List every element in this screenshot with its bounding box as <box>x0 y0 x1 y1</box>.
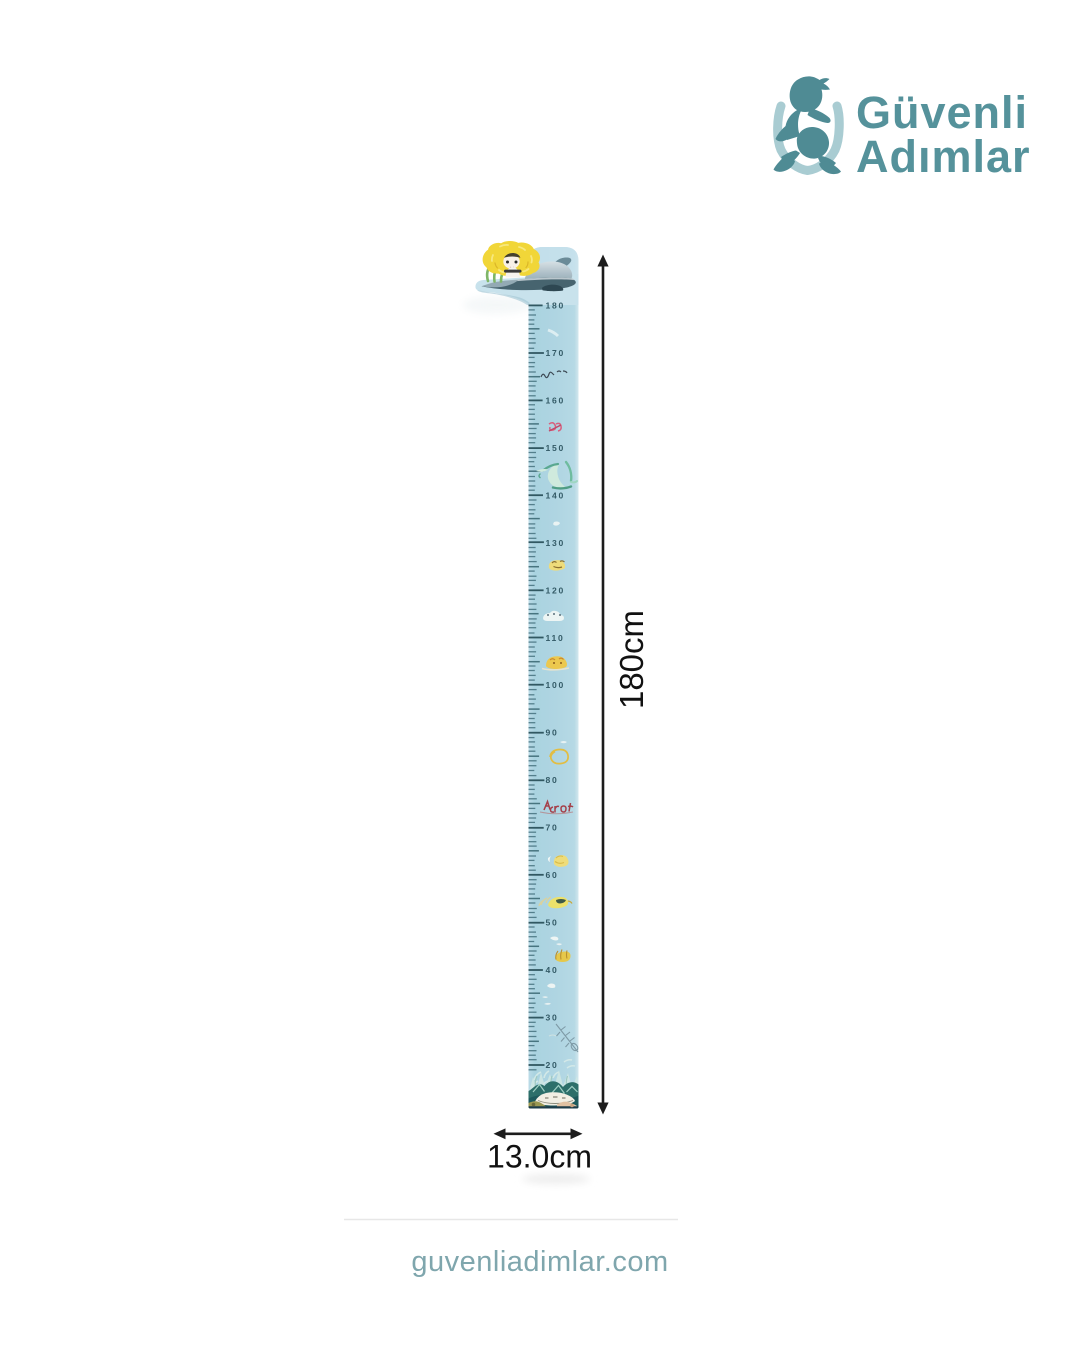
svg-text:130: 130 <box>546 538 565 548</box>
svg-text:20: 20 <box>546 1060 559 1070</box>
svg-text:100: 100 <box>546 680 565 690</box>
svg-text:13.0cm: 13.0cm <box>487 1139 592 1175</box>
svg-text:30: 30 <box>546 1013 559 1023</box>
svg-text:160: 160 <box>546 395 565 405</box>
svg-text:180: 180 <box>546 301 565 311</box>
svg-text:90: 90 <box>546 728 559 738</box>
svg-text:120: 120 <box>546 585 565 595</box>
svg-text:80: 80 <box>546 775 559 785</box>
svg-text:guvenliadimlar.com: guvenliadimlar.com <box>411 1246 668 1278</box>
svg-text:50: 50 <box>546 918 559 928</box>
svg-text:Adımlar: Adımlar <box>856 131 1031 182</box>
svg-text:70: 70 <box>546 823 559 833</box>
svg-text:170: 170 <box>546 348 565 358</box>
svg-text:150: 150 <box>546 443 565 453</box>
svg-text:180cm: 180cm <box>613 610 650 709</box>
svg-text:110: 110 <box>546 633 565 643</box>
svg-text:60: 60 <box>546 870 559 880</box>
svg-text:140: 140 <box>546 490 565 500</box>
svg-text:40: 40 <box>546 965 559 975</box>
